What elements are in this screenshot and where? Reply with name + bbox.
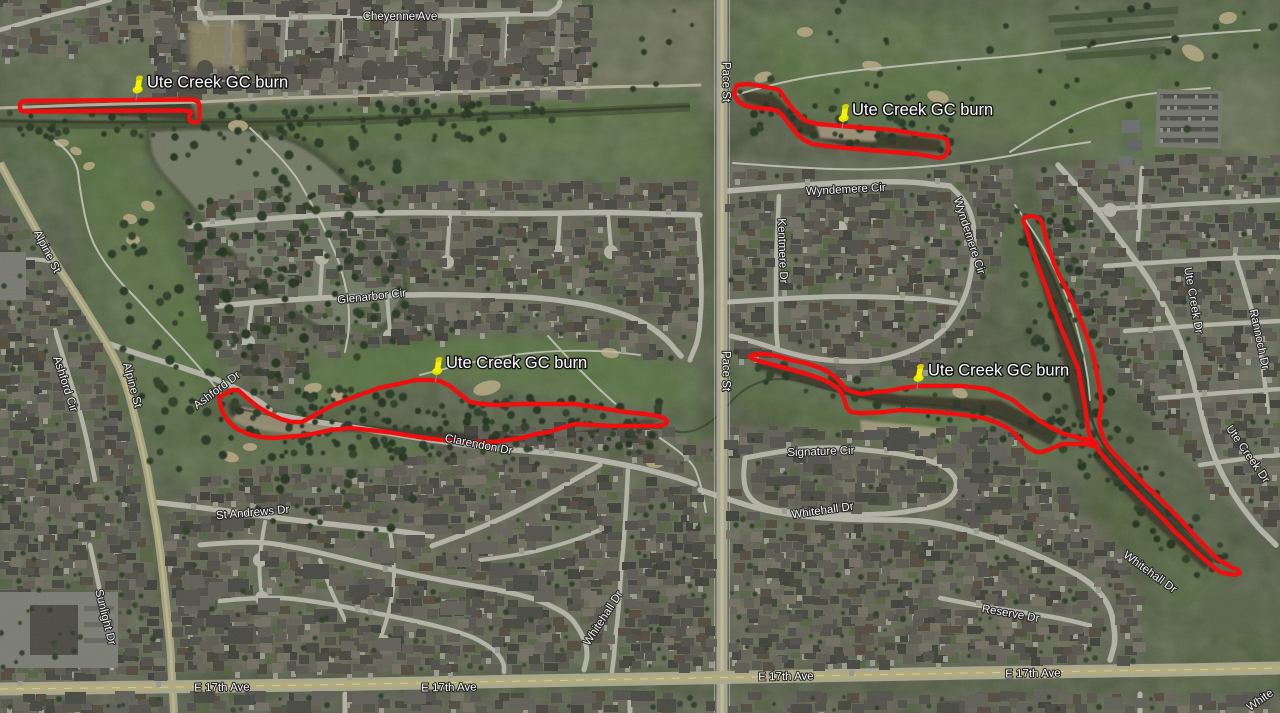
svg-text:Ute Creek GC burn: Ute Creek GC burn [852, 101, 993, 119]
svg-text:Ute Creek GC burn: Ute Creek GC burn [147, 74, 288, 92]
svg-text:Cheyenne Ave: Cheyenne Ave [363, 11, 438, 23]
svg-text:E 17th Ave: E 17th Ave [1005, 668, 1061, 681]
svg-text:Pace St: Pace St [720, 62, 732, 103]
svg-text:Ute Creek GC burn: Ute Creek GC burn [928, 362, 1069, 380]
svg-text:E 17th Ave: E 17th Ave [421, 682, 477, 695]
svg-text:Pace St: Pace St [720, 351, 732, 392]
svg-text:Kentmere Dr: Kentmere Dr [775, 218, 789, 284]
svg-text:Ute Creek GC burn: Ute Creek GC burn [446, 354, 587, 372]
svg-text:E 17th Ave: E 17th Ave [758, 671, 814, 684]
svg-text:Signature Cir: Signature Cir [787, 445, 855, 459]
svg-text:E 17th Ave: E 17th Ave [194, 682, 250, 695]
